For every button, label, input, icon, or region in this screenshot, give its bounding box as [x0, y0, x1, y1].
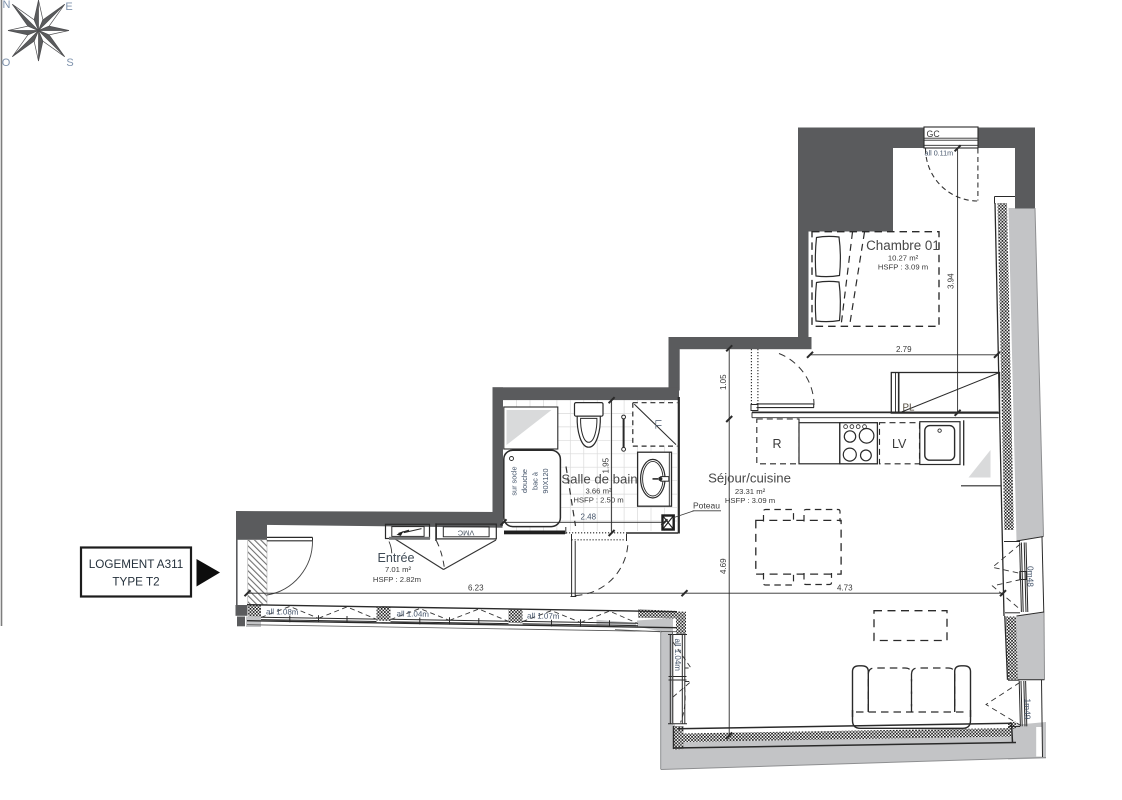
svg-text:GC: GC — [927, 129, 941, 139]
svg-text:3.66 m²: 3.66 m² — [585, 487, 612, 496]
svg-text:LOGEMENT A311: LOGEMENT A311 — [89, 558, 183, 571]
svg-text:VMC: VMC — [457, 528, 474, 537]
svg-text:1.05: 1.05 — [719, 374, 728, 390]
svg-text:2.48: 2.48 — [581, 513, 597, 522]
svg-text:all 0.11m: all 0.11m — [925, 149, 954, 158]
svg-text:2.79: 2.79 — [896, 345, 912, 354]
svg-text:douche: douche — [520, 469, 529, 493]
svg-text:23.31 m²: 23.31 m² — [735, 487, 766, 496]
svg-text:LV: LV — [892, 437, 907, 451]
svg-text:O: O — [2, 57, 11, 69]
svg-text:4.69: 4.69 — [719, 558, 728, 574]
svg-text:HSFP : 2.82m: HSFP : 2.82m — [373, 575, 421, 584]
svg-text:0m48: 0m48 — [1026, 566, 1036, 587]
svg-text:90X120: 90X120 — [541, 468, 550, 493]
svg-text:R: R — [773, 437, 782, 451]
svg-text:LL: LL — [654, 420, 664, 430]
svg-text:PL: PL — [903, 403, 916, 414]
svg-text:HSFP : 3.09 m: HSFP : 3.09 m — [725, 496, 775, 505]
svg-text:3.94: 3.94 — [947, 273, 956, 289]
svg-text:6.23: 6.23 — [468, 584, 484, 593]
svg-text:bac à: bac à — [531, 471, 540, 490]
svg-text:1m49: 1m49 — [1022, 699, 1032, 720]
svg-text:Poteau: Poteau — [693, 501, 720, 511]
svg-text:Chambre 01: Chambre 01 — [866, 238, 940, 253]
svg-text:10.27 m²: 10.27 m² — [888, 254, 919, 263]
svg-text:4.73: 4.73 — [837, 584, 853, 593]
svg-text:HSFP : 2.50 m: HSFP : 2.50 m — [573, 496, 623, 505]
svg-text:TYPE T2: TYPE T2 — [112, 576, 159, 589]
svg-text:N: N — [3, 0, 11, 11]
svg-text:HSFP : 3.09 m: HSFP : 3.09 m — [878, 263, 928, 272]
svg-text:E: E — [65, 1, 72, 13]
svg-text:7.01 m²: 7.01 m² — [385, 565, 412, 574]
svg-text:all 1.04m: all 1.04m — [673, 639, 682, 672]
svg-text:Entrée: Entrée — [377, 551, 414, 565]
svg-text:S: S — [66, 57, 73, 69]
svg-text:all 1.07m: all 1.07m — [527, 611, 560, 621]
svg-text:Salle de bain: Salle de bain — [561, 472, 637, 487]
svg-text:Séjour/cuisine: Séjour/cuisine — [708, 471, 791, 486]
svg-text:sur socle: sur socle — [510, 466, 519, 495]
svg-text:all 1.04m: all 1.04m — [396, 609, 429, 619]
svg-text:all 1.08m: all 1.08m — [266, 607, 299, 617]
